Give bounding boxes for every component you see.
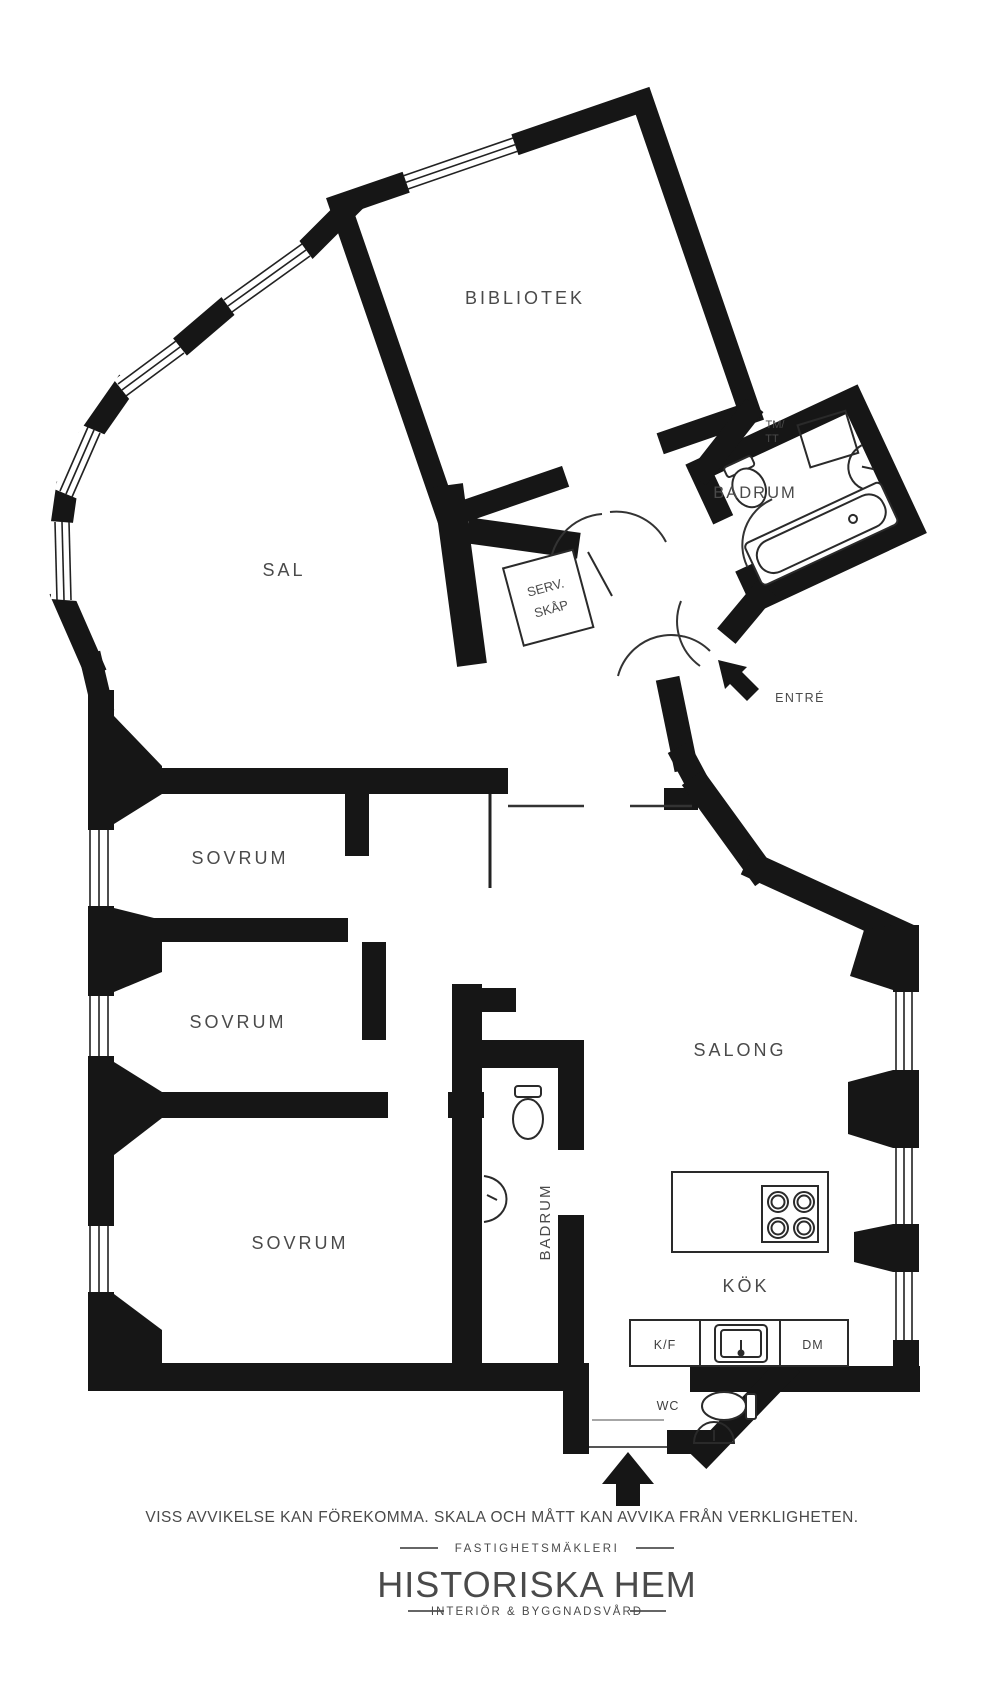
room-label-sal: SAL bbox=[262, 560, 305, 580]
doors bbox=[490, 512, 710, 1447]
salong-windows bbox=[889, 992, 923, 1340]
service-cabinet bbox=[503, 550, 593, 646]
kitchen-island bbox=[672, 1172, 828, 1252]
sink-icon bbox=[484, 1176, 507, 1222]
room-label-bibliotek: BIBLIOTEK bbox=[465, 288, 585, 308]
footer: VISS AVVIKELSE KAN FÖREKOMMA. SKALA OCH … bbox=[145, 1508, 858, 1618]
room-label-sovrum-1: SOVRUM bbox=[191, 848, 288, 868]
room-label-sovrum-3: SOVRUM bbox=[251, 1233, 348, 1253]
brand-tagline-bottom: INTERIÖR & BYGGNADSVÅRD bbox=[431, 1605, 643, 1618]
svg-text:TT: TT bbox=[765, 433, 779, 445]
brand-name: HISTORISKA HEM bbox=[377, 1564, 696, 1605]
dm-label: DM bbox=[802, 1338, 823, 1352]
wc-label: WC bbox=[657, 1399, 680, 1413]
entrance-arrow-icon bbox=[602, 1452, 654, 1506]
room-label-salong: SALONG bbox=[693, 1040, 786, 1060]
floorplan-page: BIBLIOTEK SAL BADRUM TM/ TT SERV. SKÅP E… bbox=[0, 0, 1000, 1701]
room-label-kok: KÖK bbox=[722, 1276, 769, 1296]
floor-plan: BIBLIOTEK SAL BADRUM TM/ TT SERV. SKÅP E… bbox=[0, 0, 1000, 1701]
room-label-badrum-mid: BADRUM bbox=[537, 1183, 554, 1260]
entre-arrow-icon bbox=[718, 660, 759, 701]
tm-tt-label: TM/ bbox=[766, 419, 786, 431]
brand-logo: FASTIGHETSMÄKLERI HISTORISKA HEM INTERIÖ… bbox=[377, 1543, 696, 1618]
room-label-sovrum-2: SOVRUM bbox=[189, 1012, 286, 1032]
room-label-badrum-top: BADRUM bbox=[713, 484, 797, 502]
toilet-icon bbox=[513, 1086, 543, 1139]
brand-tagline-top: FASTIGHETSMÄKLERI bbox=[455, 1543, 620, 1555]
kf-label: K/F bbox=[654, 1338, 676, 1352]
disclaimer-text: VISS AVVIKELSE KAN FÖREKOMMA. SKALA OCH … bbox=[145, 1508, 858, 1526]
wc-toilet-icon bbox=[702, 1392, 756, 1420]
entre-label: ENTRÉ bbox=[775, 690, 825, 705]
